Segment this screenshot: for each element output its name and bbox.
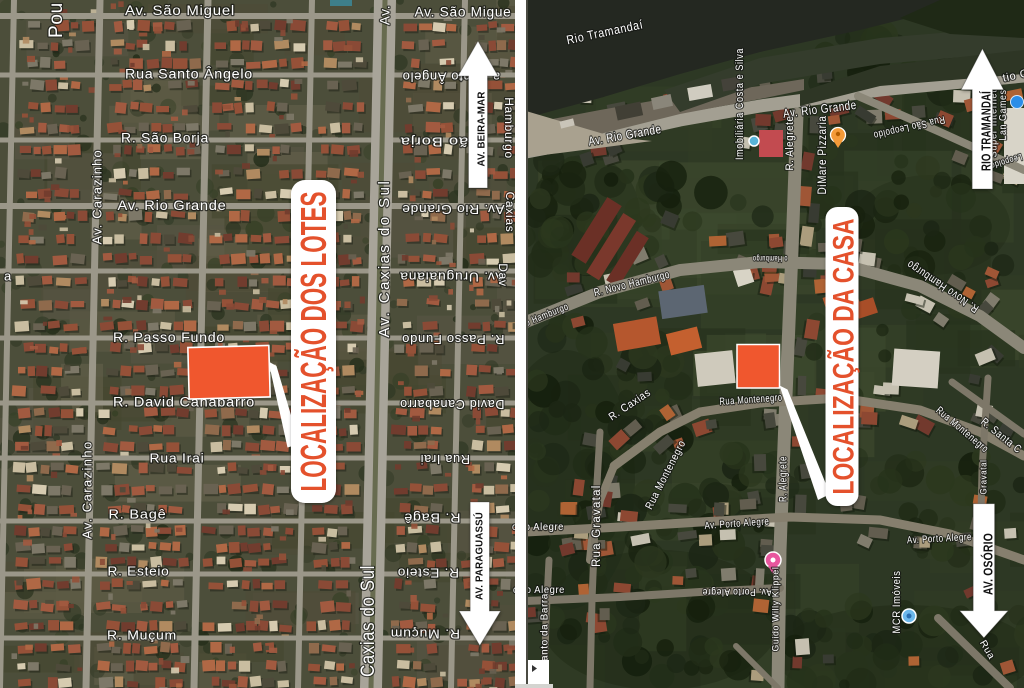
svg-text:anto da Barra: anto da Barra bbox=[540, 593, 551, 661]
svg-text:DiMare Pizzaria: DiMare Pizzaria bbox=[816, 116, 829, 195]
svg-text:Dav: Dav bbox=[496, 263, 510, 286]
svg-text:R. Muçum: R. Muçum bbox=[107, 627, 177, 642]
svg-text:São Borja: São Borja bbox=[400, 135, 480, 150]
svg-text:R. Bagê: R. Bagê bbox=[404, 511, 461, 526]
svg-text:Av. Porto Alegre: Av. Porto Alegre bbox=[702, 586, 772, 598]
svg-text:Av.: Av. bbox=[378, 5, 393, 25]
svg-text:a: a bbox=[4, 268, 12, 283]
svg-text:R. Esteio: R. Esteio bbox=[108, 563, 170, 578]
svg-text:R. Bagê: R. Bagê bbox=[109, 506, 167, 521]
svg-text:Hamburgo: Hamburgo bbox=[502, 97, 516, 159]
svg-text:Caxias: Caxias bbox=[503, 192, 517, 233]
svg-text:o Hamburgo: o Hamburgo bbox=[753, 254, 788, 264]
svg-text:Av. Uruguaiana: Av. Uruguaiana bbox=[399, 270, 504, 285]
svg-text:R. Muçum: R. Muçum bbox=[390, 627, 460, 642]
svg-text:LOCALIZAÇÃO DA CASA: LOCALIZAÇÃO DA CASA bbox=[826, 219, 860, 495]
svg-text:Av. Rio Grande: Av. Rio Grande bbox=[118, 197, 227, 213]
svg-text:Gravatal: Gravatal bbox=[978, 460, 988, 495]
svg-text:R. Esteio: R. Esteio bbox=[397, 566, 459, 581]
svg-text:Av. São Migue: Av. São Migue bbox=[415, 5, 512, 20]
svg-text:MCR Imóveis: MCR Imóveis bbox=[891, 571, 903, 634]
svg-text:Pou: Pou bbox=[46, 2, 67, 38]
svg-text:Av. São Miguel: Av. São Miguel bbox=[125, 3, 235, 18]
svg-text:Lan Games: Lan Games bbox=[997, 90, 1009, 141]
svg-text:Av. Carazinho: Av. Carazinho bbox=[89, 150, 104, 245]
svg-text:Av. Carazinho: Av. Carazinho bbox=[79, 441, 94, 539]
svg-text:Guido Willy Klippel: Guido Willy Klippel bbox=[771, 567, 782, 652]
svg-text:Rua Gravatal: Rua Gravatal bbox=[591, 485, 603, 567]
svg-text:R. São Borja: R. São Borja bbox=[121, 131, 209, 146]
svg-text:Rua Irai: Rua Irai bbox=[420, 452, 470, 466]
svg-text:Av. Rio Grande: Av. Rio Grande bbox=[402, 202, 505, 217]
svg-text:AV. OSÓRIO: AV. OSÓRIO bbox=[980, 533, 995, 595]
svg-text:Rua Irai: Rua Irai bbox=[150, 451, 205, 465]
svg-text:AV. BEIRA-MAR: AV. BEIRA-MAR bbox=[477, 91, 488, 166]
svg-text:Imobiliária Costa e Silva: Imobiliária Costa e Silva bbox=[734, 48, 746, 160]
svg-text:David Canabarro: David Canabarro bbox=[400, 397, 505, 412]
svg-text:R. Alegrete: R. Alegrete bbox=[777, 456, 789, 502]
svg-text:Av. Caxias do Sul: Av. Caxias do Sul bbox=[376, 181, 393, 338]
svg-text:RIO TRAMANDAÍ: RIO TRAMANDAÍ bbox=[978, 91, 993, 171]
svg-text:LOCALIZAÇÃO DOS LOTES: LOCALIZAÇÃO DOS LOTES bbox=[292, 192, 334, 492]
svg-text:AV. PARAGUASSÚ: AV. PARAGUASSÚ bbox=[473, 512, 486, 600]
svg-text:Rua Santo Ângelo: Rua Santo Ângelo bbox=[125, 67, 253, 82]
svg-text:R. Alegrete: R. Alegrete bbox=[784, 116, 796, 171]
svg-text:R. Passo Fundo: R. Passo Fundo bbox=[402, 332, 505, 347]
svg-text:Caxias do Sul: Caxias do Sul bbox=[358, 565, 379, 677]
svg-text:R. Passo Fundo: R. Passo Fundo bbox=[113, 329, 225, 345]
